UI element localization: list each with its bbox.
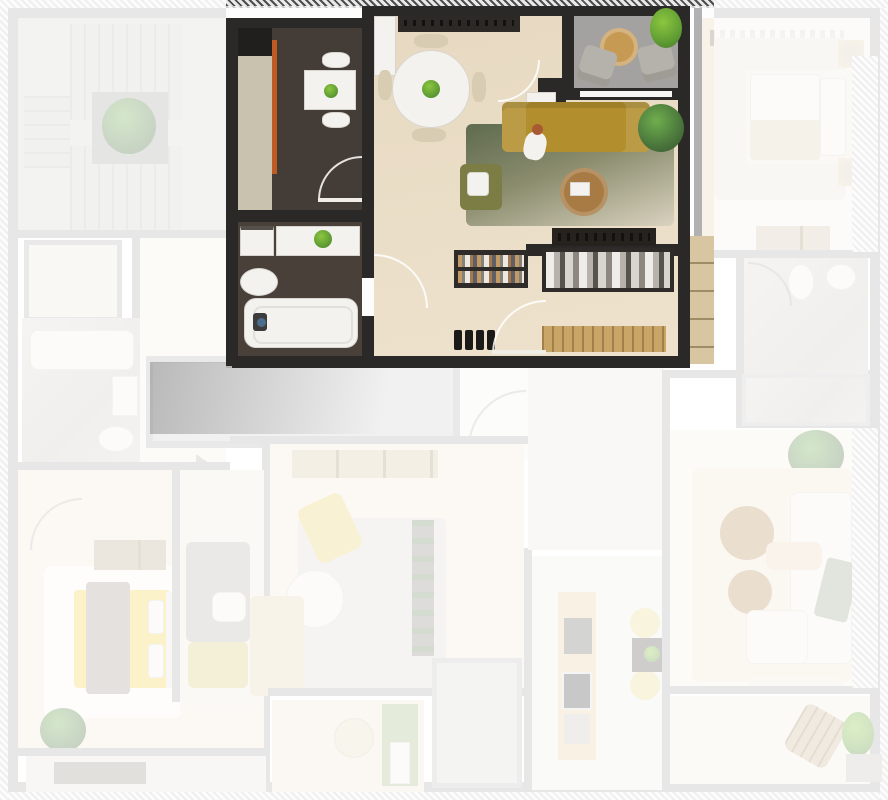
wall-segment xyxy=(678,6,690,368)
shoe-rack xyxy=(454,330,462,350)
dining-chair xyxy=(378,70,392,100)
wall-segment xyxy=(362,222,374,278)
dim-overlay-right xyxy=(714,0,888,800)
bathroom xyxy=(238,222,362,356)
accent-strip xyxy=(272,40,277,174)
plant-icon xyxy=(314,230,332,248)
floorplan-canvas xyxy=(0,0,888,800)
sideboard-items xyxy=(404,20,514,26)
faucet-handle xyxy=(257,318,266,327)
bathtub xyxy=(244,298,358,348)
shelf-books xyxy=(458,255,524,267)
dining-chair xyxy=(322,52,350,68)
door-leaf[interactable] xyxy=(318,198,362,202)
door-swing xyxy=(318,156,362,200)
plant-icon xyxy=(638,104,684,152)
bathtub-basin xyxy=(253,306,353,344)
entry-door-leaf[interactable] xyxy=(492,350,546,354)
upper-cabinets xyxy=(238,28,272,56)
wall-segment xyxy=(232,210,374,222)
hallway xyxy=(374,246,678,356)
wall-segment xyxy=(232,356,690,368)
hanging-clothes xyxy=(546,252,670,288)
entry-bench xyxy=(542,326,666,352)
unit-shadow xyxy=(150,362,580,434)
plant-icon xyxy=(650,8,682,48)
wall-segment xyxy=(226,18,238,366)
plant-icon xyxy=(324,84,338,98)
person-head xyxy=(532,124,543,135)
shelf-books xyxy=(458,271,524,283)
plant-icon xyxy=(422,80,440,98)
toilet xyxy=(240,268,278,296)
wall-segment xyxy=(362,18,374,210)
dining-chair xyxy=(322,112,350,128)
open-bookshelf xyxy=(454,250,528,288)
wall-cabinets xyxy=(690,236,714,364)
wall-segment xyxy=(362,316,374,356)
tall-closet xyxy=(374,16,396,76)
kitchen-counter xyxy=(238,56,272,210)
notebook xyxy=(570,182,590,196)
dining-chair xyxy=(414,34,448,48)
gray-armchair xyxy=(636,40,678,83)
wall-segment xyxy=(232,18,372,28)
entry-door-swing xyxy=(492,300,546,354)
tv-console-items xyxy=(558,233,650,241)
dining-chair xyxy=(412,128,446,142)
highlighted-apartment-unit[interactable] xyxy=(226,0,714,370)
kitchen xyxy=(238,28,362,210)
lounge-cushion xyxy=(467,172,489,196)
washer xyxy=(240,226,274,256)
dining-chair xyxy=(472,72,486,102)
balcony xyxy=(574,6,678,90)
open-wardrobe xyxy=(542,248,674,292)
